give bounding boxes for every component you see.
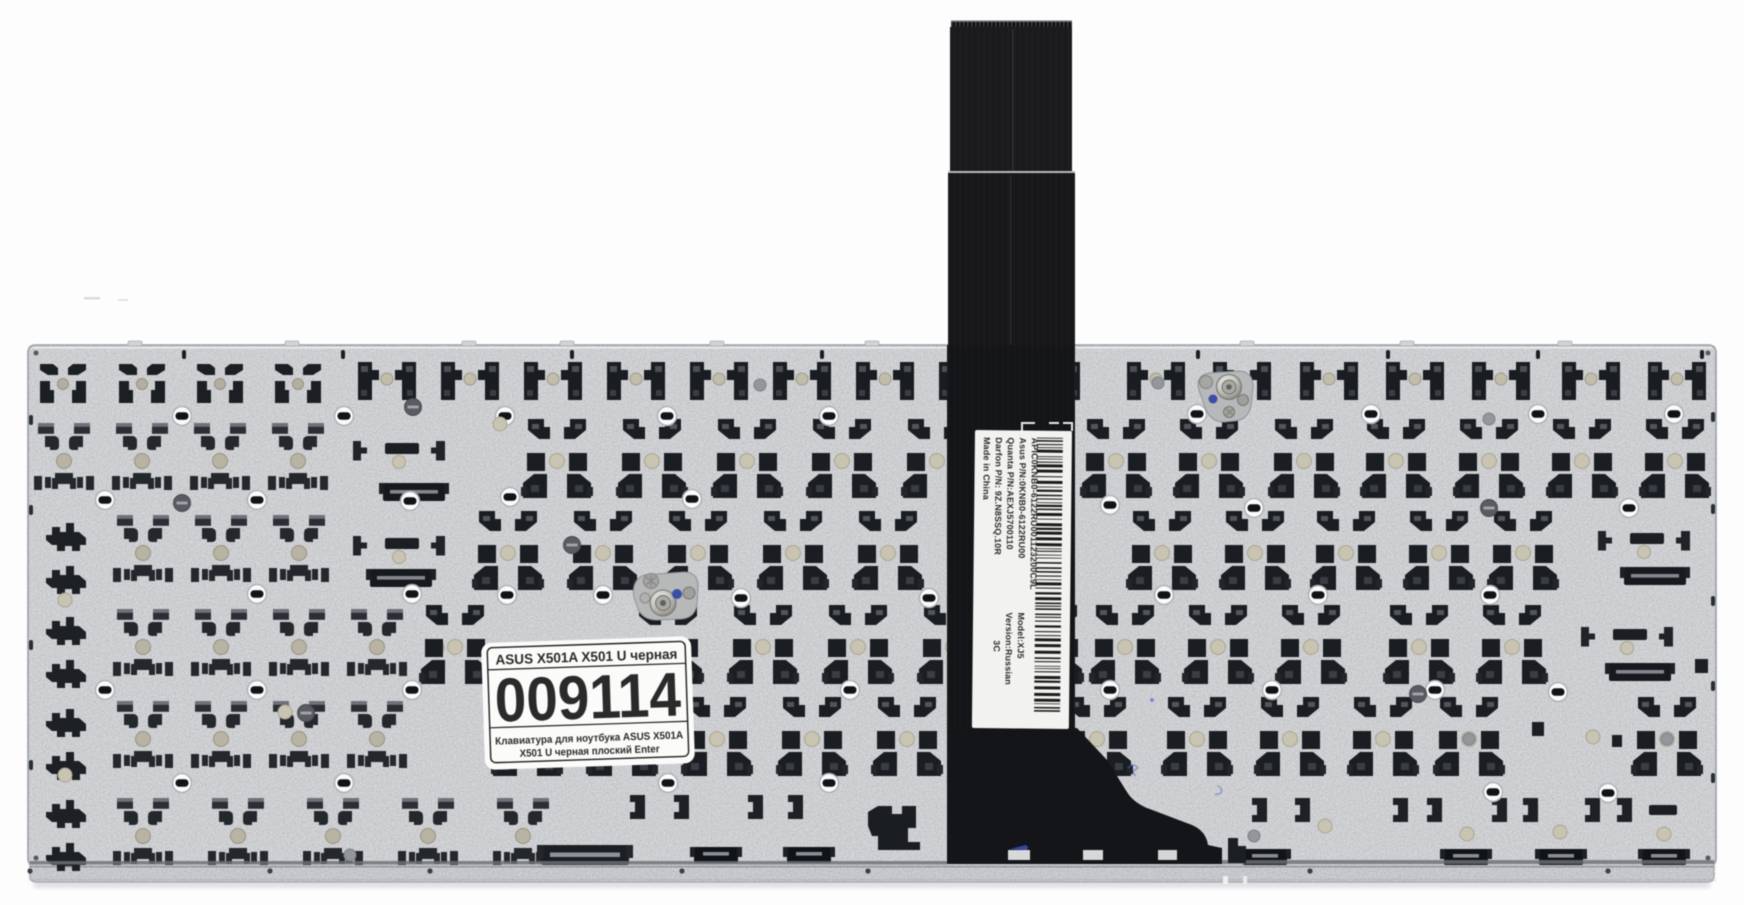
svg-text:Made in China: Made in China (981, 437, 992, 500)
svg-text:Asus P/N:0KNB0-6122RU00: Asus P/N:0KNB0-6122RU00 (1017, 437, 1028, 558)
svg-text:3C: 3C (992, 640, 1002, 652)
svg-text:Quanta P/N:AEXJ5700110: Quanta P/N:AEXJ5700110 (1005, 437, 1016, 550)
svg-text:Darfon P/N: 9Z.N8SSQ.10R: Darfon P/N: 9Z.N8SSQ.10R (993, 437, 1004, 555)
svg-text:APIC0KNB0-6122RU001123200C9L: APIC0KNB0-6122RU001123200C9L (1028, 438, 1040, 591)
svg-text:009114: 009114 (494, 660, 683, 735)
svg-text:Model:XJ5: Model:XJ5 (1016, 612, 1026, 658)
svg-text:Version:Russian: Version:Russian (1003, 612, 1014, 685)
